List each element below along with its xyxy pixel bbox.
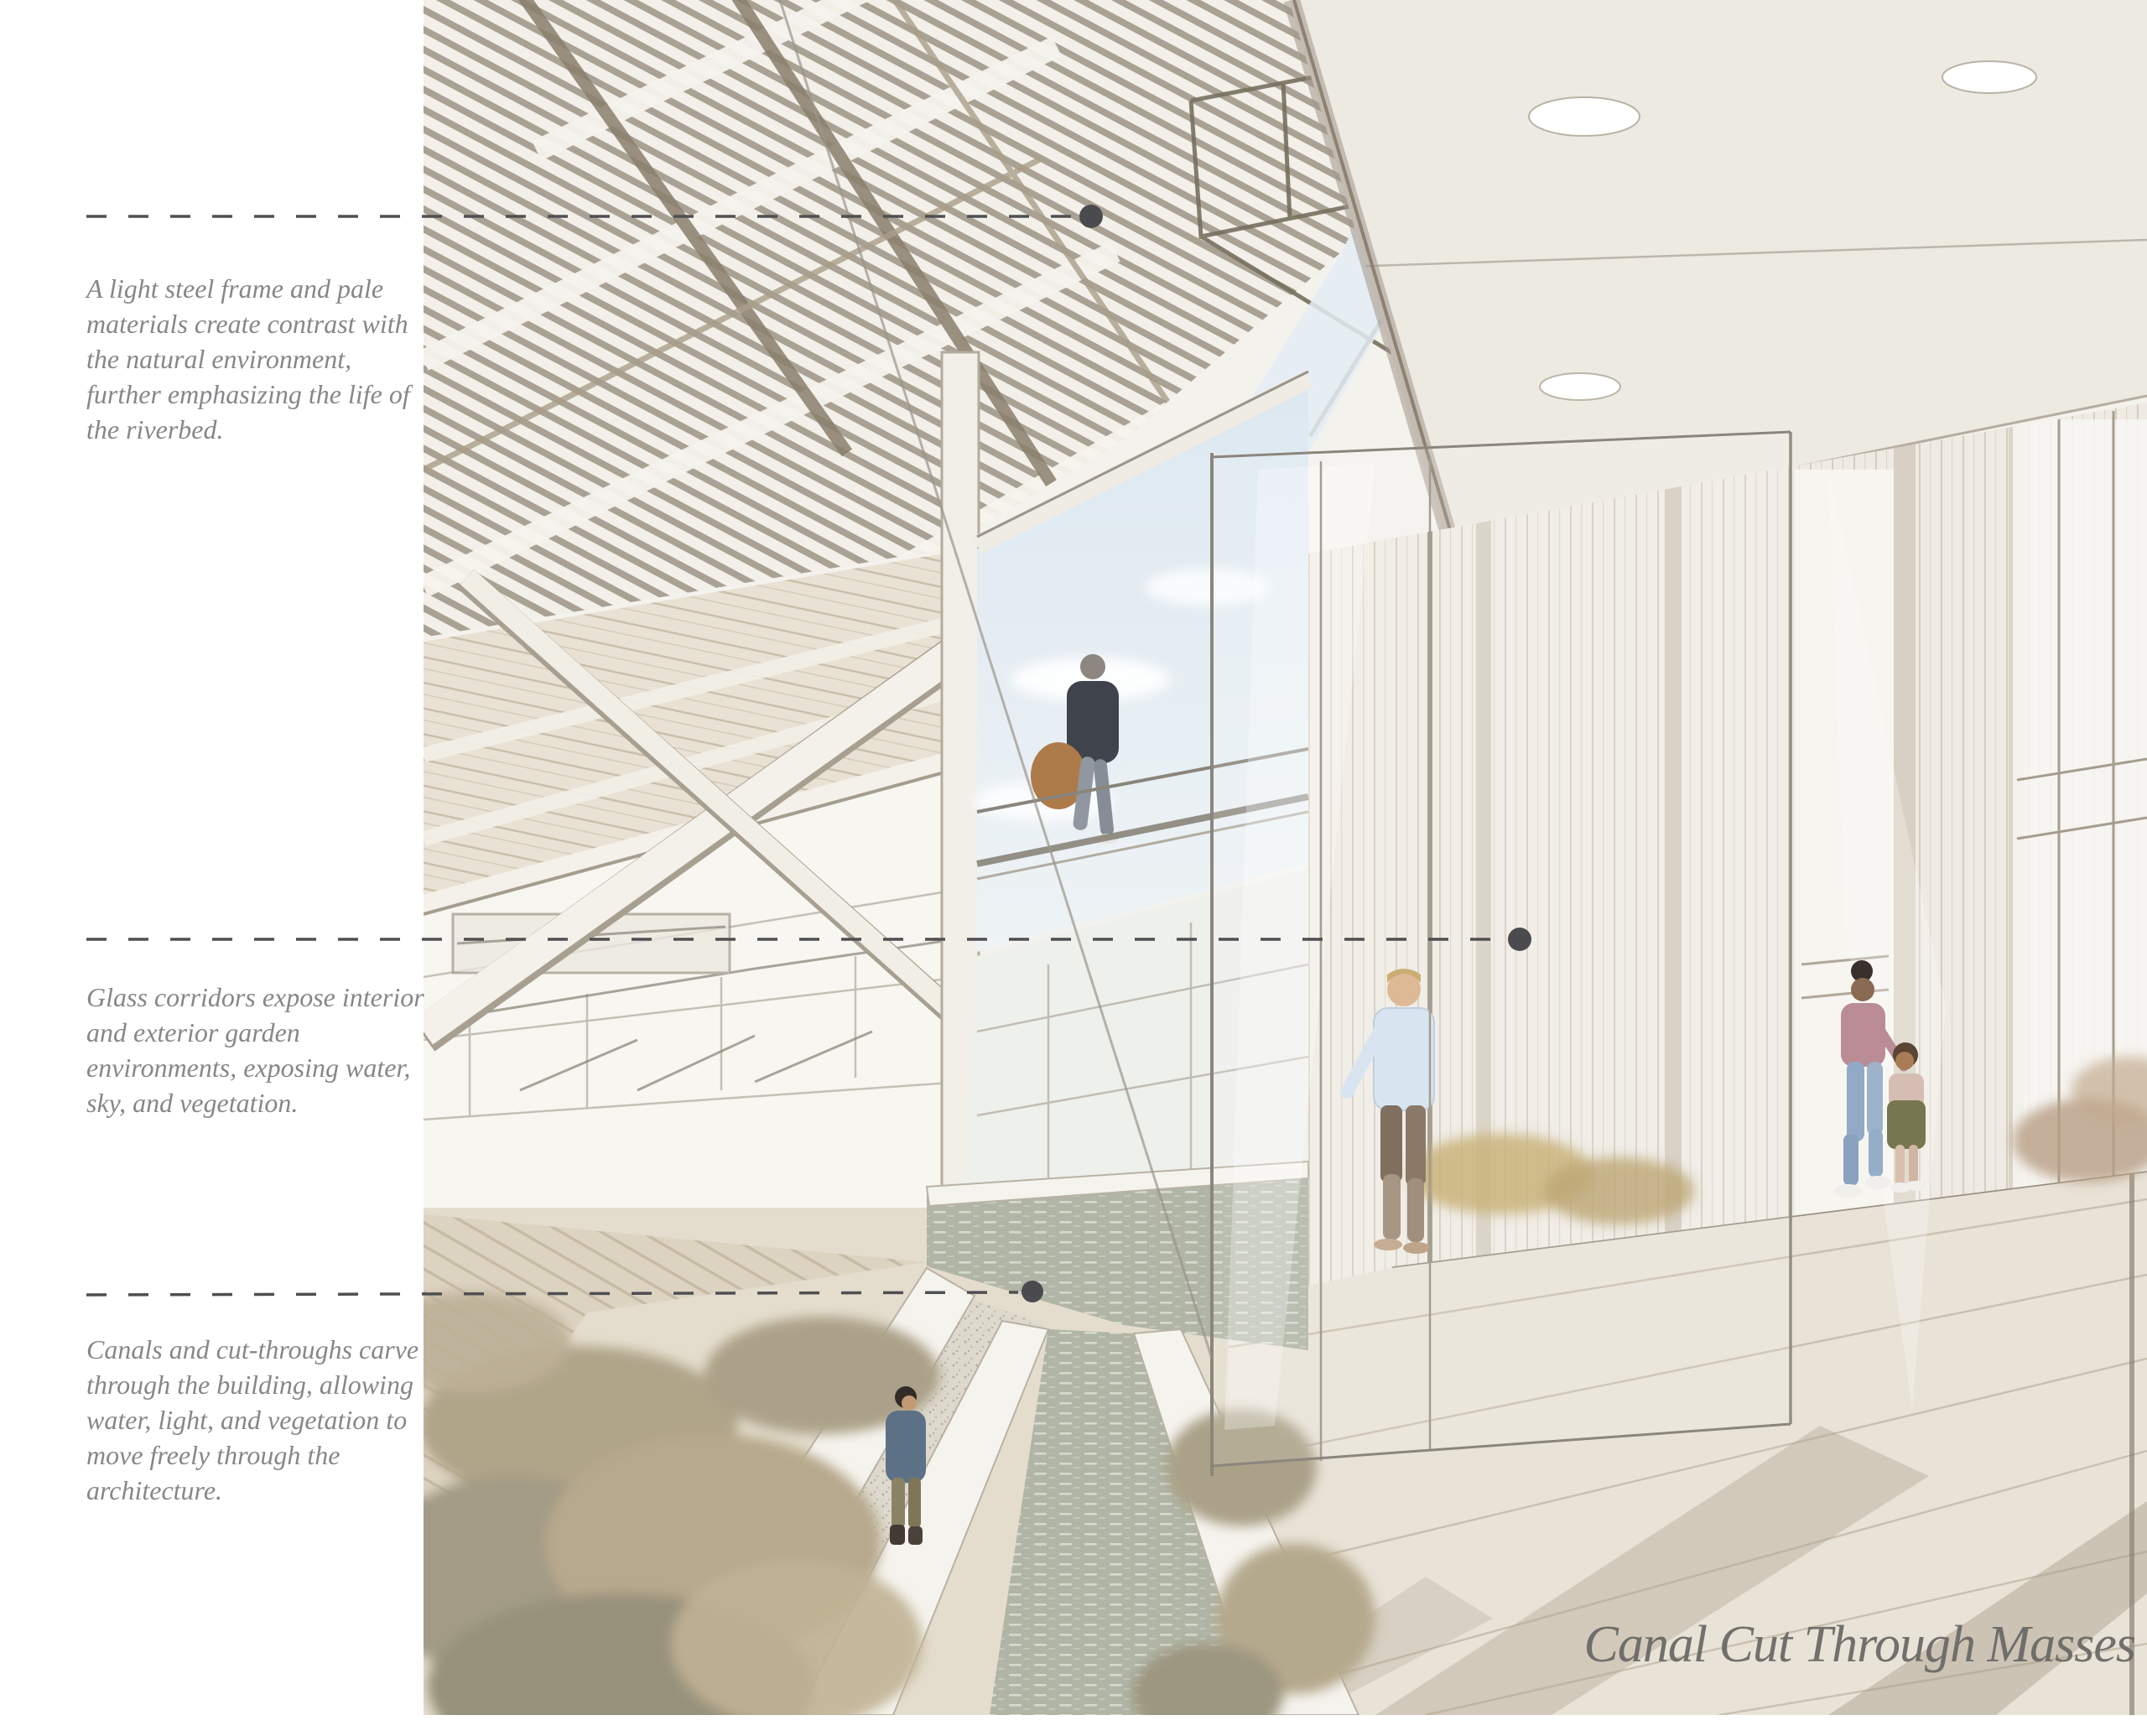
annotation-line: water, light, and vegetation to (86, 1402, 397, 1437)
leader-dot-2 (1508, 928, 1531, 951)
annotation-line: Glass corridors expose interior (86, 980, 397, 1015)
annotation-line: further emphasizing the life of (86, 377, 397, 412)
leader-dot-1 (1079, 205, 1103, 228)
leader-dot-3 (1022, 1281, 1043, 1302)
annotation-line: through the building, allowing (86, 1367, 397, 1402)
annotation-canals: Canals and cut-throughs carve through th… (86, 1332, 397, 1508)
annotation-glass-corridors: Glass corridors expose interior and exte… (86, 980, 397, 1120)
annotation-line: sky, and vegetation. (86, 1085, 397, 1120)
annotation-line: and exterior garden (86, 1015, 397, 1050)
page-title: Canal Cut Through Masses (1583, 1615, 2135, 1675)
annotation-line: Canals and cut-throughs carve (86, 1332, 397, 1367)
ceiling-light (1942, 61, 2036, 93)
ceiling-light (1540, 373, 1620, 400)
presentation-board: A light steel frame and pale materials c… (0, 0, 2147, 1736)
annotation-line: environments, exposing water, (86, 1050, 397, 1085)
annotation-line: materials create contrast with (86, 306, 397, 341)
annotation-line: A light steel frame and pale (86, 271, 397, 306)
annotation-line: move freely through the (86, 1437, 397, 1473)
annotation-steel-frame: A light steel frame and pale materials c… (86, 271, 397, 447)
annotation-line: the natural environment, (86, 341, 397, 377)
annotation-line: the riverbed. (86, 412, 397, 447)
annotation-line: architecture. (86, 1473, 397, 1508)
ceiling-light (1529, 97, 1640, 136)
vegetation-left (369, 1292, 939, 1736)
